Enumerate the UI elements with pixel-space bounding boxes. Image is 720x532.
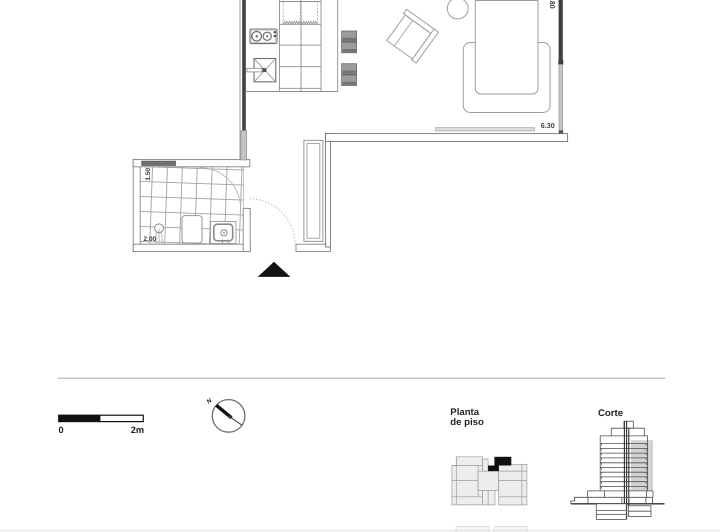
svg-text:1.50: 1.50 <box>145 167 152 180</box>
svg-text:de piso: de piso <box>450 417 484 428</box>
svg-text:2m: 2m <box>131 425 144 435</box>
svg-text:Corte: Corte <box>598 408 623 419</box>
svg-text:0: 0 <box>59 425 64 435</box>
svg-text:2.80: 2.80 <box>548 0 555 9</box>
svg-text:6.30: 6.30 <box>541 121 555 130</box>
svg-text:Planta: Planta <box>450 407 479 418</box>
svg-text:N: N <box>206 397 214 406</box>
svg-text:2.00: 2.00 <box>143 236 156 243</box>
